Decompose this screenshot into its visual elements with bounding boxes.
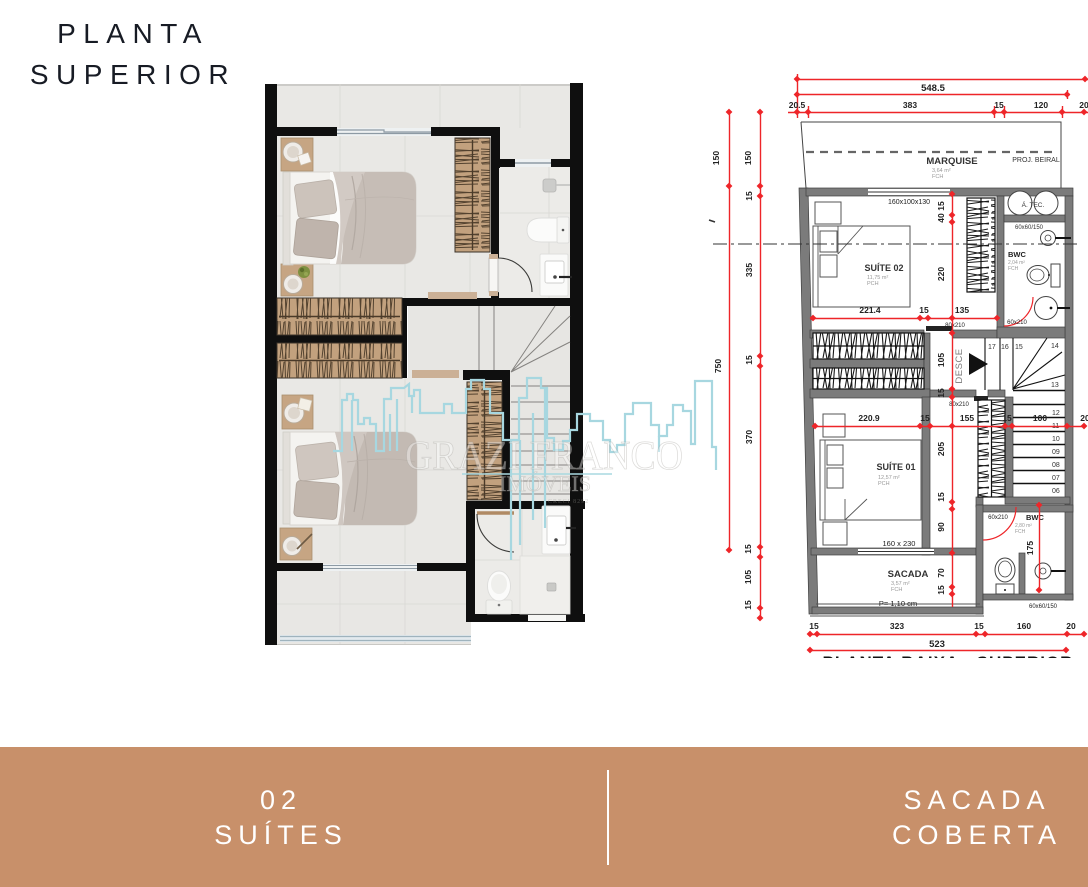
svg-text:15: 15 bbox=[809, 621, 819, 631]
svg-text:SUÍTE 01: SUÍTE 01 bbox=[876, 462, 915, 472]
svg-text:Á. TEC.: Á. TEC. bbox=[1022, 200, 1045, 209]
svg-text:14: 14 bbox=[1051, 343, 1059, 350]
svg-text:07: 07 bbox=[1052, 475, 1060, 482]
svg-text:12: 12 bbox=[1052, 410, 1060, 417]
svg-text:20.5: 20.5 bbox=[789, 100, 806, 110]
svg-text:15: 15 bbox=[743, 544, 753, 554]
svg-text:100: 100 bbox=[1033, 413, 1047, 423]
svg-text:15: 15 bbox=[743, 600, 753, 610]
svg-text:383: 383 bbox=[903, 100, 917, 110]
svg-text:548.5: 548.5 bbox=[921, 83, 945, 94]
svg-text:10: 10 bbox=[1052, 436, 1060, 443]
svg-text:60x60/150: 60x60/150 bbox=[1015, 225, 1044, 231]
svg-text:15: 15 bbox=[1002, 413, 1012, 423]
svg-text:60x210: 60x210 bbox=[988, 515, 1008, 521]
svg-text:523: 523 bbox=[929, 639, 945, 650]
svg-text:370: 370 bbox=[744, 430, 754, 444]
svg-text:IMÓVEIS: IMÓVEIS bbox=[499, 471, 591, 496]
svg-text:FCH: FCH bbox=[1015, 529, 1026, 535]
svg-text:FCH: FCH bbox=[891, 587, 902, 593]
svg-text:80x210: 80x210 bbox=[945, 323, 965, 329]
svg-text:135: 135 bbox=[955, 305, 969, 315]
svg-text:15: 15 bbox=[920, 413, 930, 423]
svg-text:SACADA: SACADA bbox=[888, 569, 929, 580]
svg-text:15: 15 bbox=[744, 355, 754, 365]
svg-text:160x100x130: 160x100x130 bbox=[888, 199, 930, 206]
svg-text:160: 160 bbox=[1017, 621, 1031, 631]
svg-text:205: 205 bbox=[936, 442, 946, 456]
svg-text:17: 17 bbox=[988, 344, 996, 351]
svg-text:155: 155 bbox=[960, 413, 974, 423]
svg-text:60x60/150: 60x60/150 bbox=[1029, 604, 1058, 610]
svg-text:220.9: 220.9 bbox=[858, 413, 880, 423]
svg-text:60x210: 60x210 bbox=[1007, 320, 1027, 326]
svg-text:220: 220 bbox=[936, 267, 946, 281]
svg-text:PCH: PCH bbox=[878, 481, 890, 487]
svg-text:FCH: FCH bbox=[932, 174, 943, 180]
svg-text:90: 90 bbox=[936, 522, 946, 532]
svg-text:PROJ. BEIRAL: PROJ. BEIRAL bbox=[1012, 157, 1060, 164]
svg-text:BWC: BWC bbox=[1026, 513, 1044, 522]
svg-text:40: 40 bbox=[936, 213, 946, 223]
svg-text:15: 15 bbox=[919, 305, 929, 315]
svg-text:15: 15 bbox=[936, 492, 946, 502]
svg-text:06: 06 bbox=[1052, 488, 1060, 495]
svg-text:20: 20 bbox=[1079, 100, 1088, 110]
svg-text:MARQUISE: MARQUISE bbox=[926, 156, 977, 167]
svg-text:750: 750 bbox=[713, 359, 723, 373]
svg-text:SUÍTE 02: SUÍTE 02 bbox=[864, 263, 903, 273]
svg-text:15: 15 bbox=[744, 191, 754, 201]
svg-text:15: 15 bbox=[974, 621, 984, 631]
svg-text:15: 15 bbox=[936, 201, 946, 211]
svg-text:PCH: PCH bbox=[867, 281, 879, 287]
svg-text:15: 15 bbox=[936, 388, 946, 398]
svg-text:BWC: BWC bbox=[1008, 250, 1026, 259]
svg-text:20: 20 bbox=[1080, 413, 1088, 423]
svg-text:105: 105 bbox=[936, 353, 946, 367]
svg-text:323: 323 bbox=[890, 621, 904, 631]
svg-text:13: 13 bbox=[1051, 382, 1059, 389]
svg-text:70: 70 bbox=[936, 568, 946, 578]
svg-text:105: 105 bbox=[743, 570, 753, 584]
svg-text:15: 15 bbox=[936, 585, 946, 595]
svg-text:150: 150 bbox=[711, 151, 721, 165]
svg-text:221.4: 221.4 bbox=[859, 305, 881, 315]
svg-text:15: 15 bbox=[994, 100, 1004, 110]
svg-text:160 x 230: 160 x 230 bbox=[883, 539, 916, 548]
svg-text:P= 1,10 cm: P= 1,10 cm bbox=[879, 599, 917, 608]
svg-text:08: 08 bbox=[1052, 462, 1060, 469]
svg-text:20: 20 bbox=[1066, 621, 1076, 631]
svg-text:335: 335 bbox=[744, 263, 754, 277]
svg-text:CRECI 8292: CRECI 8292 bbox=[548, 499, 589, 505]
svg-text:09: 09 bbox=[1052, 449, 1060, 456]
svg-text:FCH: FCH bbox=[1008, 266, 1019, 272]
svg-text:175: 175 bbox=[1025, 541, 1035, 555]
svg-text:150: 150 bbox=[743, 151, 753, 165]
svg-text:120: 120 bbox=[1034, 100, 1048, 110]
svg-text:15: 15 bbox=[1015, 344, 1023, 351]
svg-text:16: 16 bbox=[1001, 344, 1009, 351]
svg-text:DESCE: DESCE bbox=[954, 348, 965, 383]
